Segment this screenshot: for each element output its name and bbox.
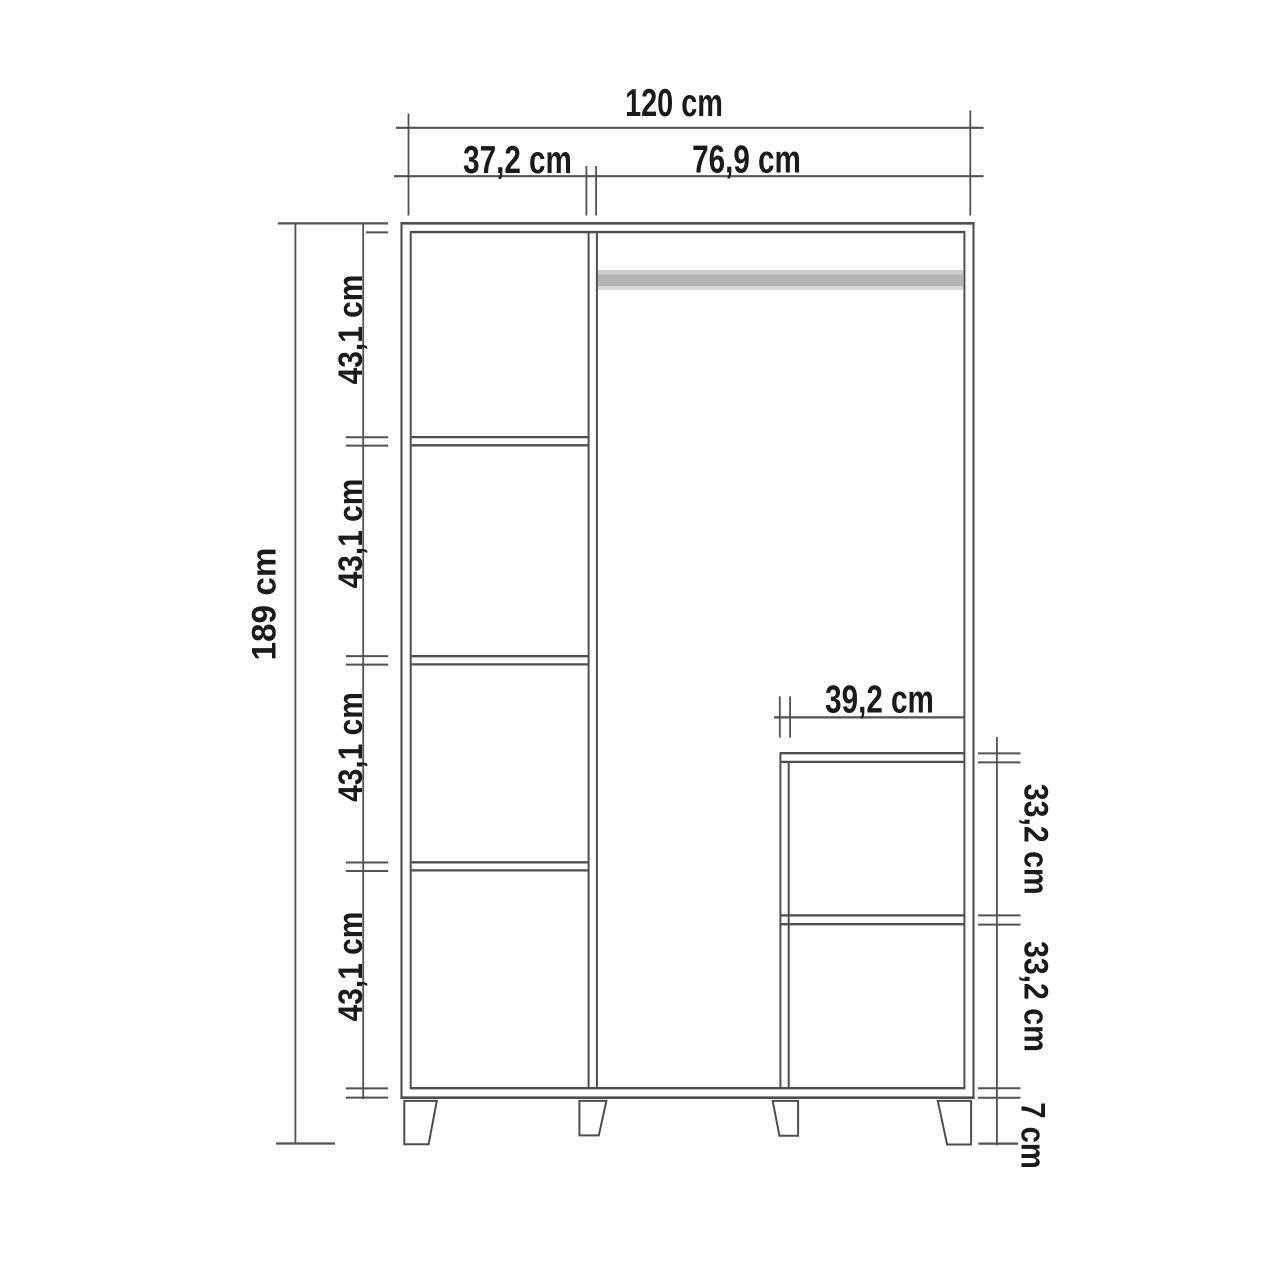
svg-text:43,1 cm: 43,1 cm — [331, 275, 369, 385]
svg-text:76,9 cm: 76,9 cm — [692, 139, 801, 182]
svg-text:33,2 cm: 33,2 cm — [1017, 784, 1055, 895]
svg-text:120 cm: 120 cm — [625, 82, 723, 125]
svg-text:43,1 cm: 43,1 cm — [331, 479, 369, 589]
svg-text:43,1 cm: 43,1 cm — [331, 692, 369, 802]
svg-text:43,1 cm: 43,1 cm — [331, 912, 369, 1022]
svg-text:189 cm: 189 cm — [246, 548, 283, 661]
svg-text:33,2 cm: 33,2 cm — [1017, 941, 1055, 1052]
svg-text:37,2 cm: 37,2 cm — [463, 139, 572, 182]
svg-text:7 cm: 7 cm — [1014, 1102, 1053, 1169]
svg-text:39,2 cm: 39,2 cm — [825, 679, 934, 722]
